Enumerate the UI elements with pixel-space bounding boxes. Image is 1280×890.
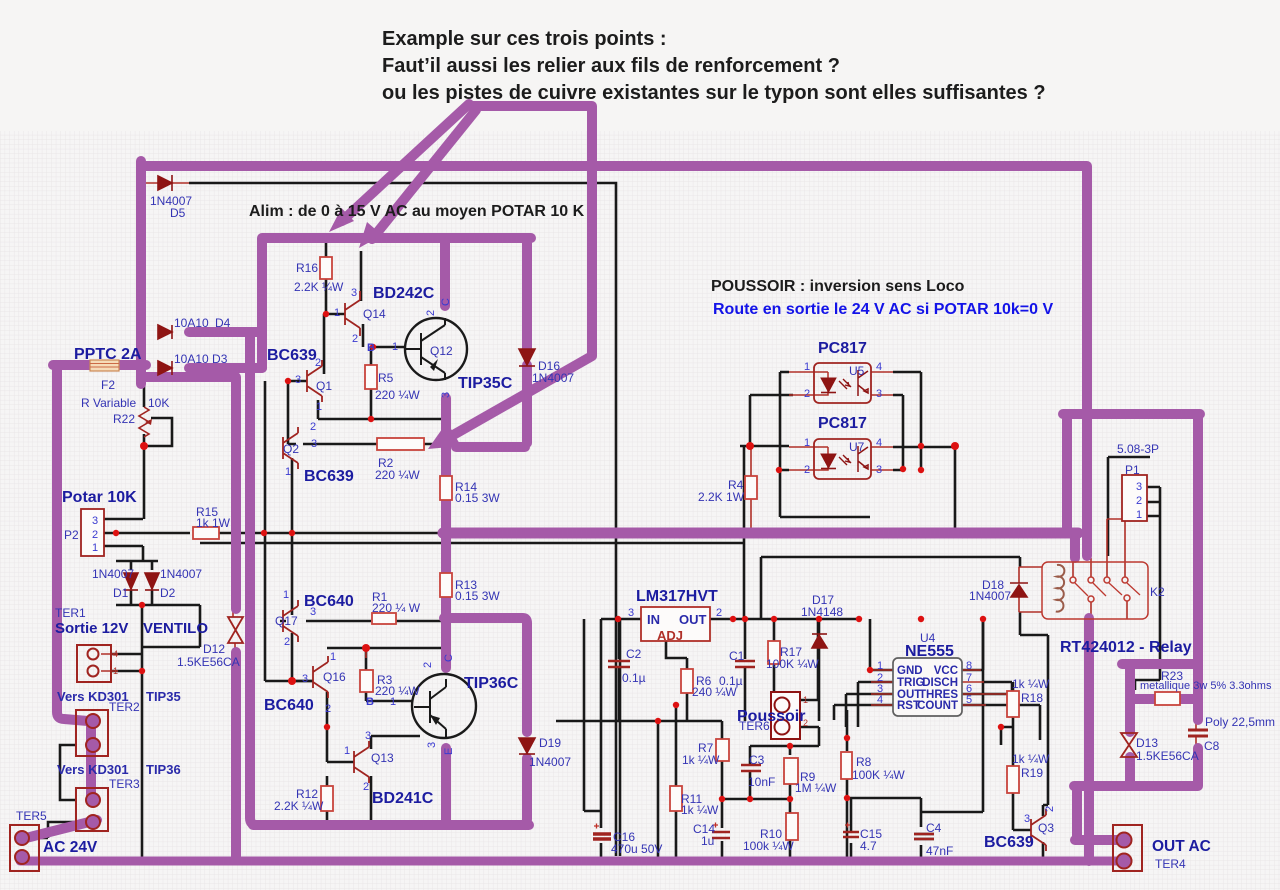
svg-text:Sortie 12V: Sortie 12V <box>55 620 128 637</box>
svg-text:2: 2 <box>716 607 722 619</box>
svg-text:OUT AC: OUT AC <box>1152 838 1211 855</box>
svg-text:2: 2 <box>284 636 290 648</box>
svg-text:1k ¼W: 1k ¼W <box>1012 752 1050 766</box>
svg-text:P2: P2 <box>64 528 79 542</box>
svg-text:8: 8 <box>966 660 972 672</box>
svg-text:1: 1 <box>330 651 336 663</box>
svg-text:0.1µ: 0.1µ <box>622 671 646 685</box>
svg-text:TER6: TER6 <box>739 719 770 733</box>
svg-text:TIP36: TIP36 <box>146 762 181 777</box>
svg-text:4: 4 <box>876 437 882 449</box>
svg-text:Route en sortie le 24 V AC si: Route en sortie le 24 V AC si POTAR 10k=… <box>713 301 1053 318</box>
svg-text:4: 4 <box>876 361 882 373</box>
svg-text:5.08-3P: 5.08-3P <box>1117 442 1159 456</box>
svg-text:TIP35: TIP35 <box>146 689 181 704</box>
svg-text:2: 2 <box>1044 806 1056 812</box>
svg-text:1: 1 <box>285 466 291 478</box>
svg-text:Q17: Q17 <box>275 614 298 628</box>
svg-text:100K ¼W: 100K ¼W <box>766 657 819 671</box>
svg-text:P1: P1 <box>1125 463 1140 477</box>
svg-text:U4: U4 <box>920 631 936 645</box>
svg-text:3: 3 <box>876 464 882 476</box>
svg-text:3: 3 <box>92 515 98 527</box>
svg-text:Potar 10K: Potar 10K <box>62 489 137 506</box>
svg-text:R Variable: R Variable <box>81 396 136 410</box>
svg-text:LM317HVT: LM317HVT <box>636 588 718 605</box>
svg-text:U7: U7 <box>849 440 865 454</box>
svg-text:VCC: VCC <box>934 665 958 677</box>
svg-text:1N4007: 1N4007 <box>529 755 571 769</box>
svg-text:100K ¼W: 100K ¼W <box>852 768 905 782</box>
svg-text:2: 2 <box>315 357 321 369</box>
svg-text:D4: D4 <box>215 316 231 330</box>
svg-text:2: 2 <box>804 388 810 400</box>
svg-text:TRIG: TRIG <box>897 677 925 689</box>
svg-text:E: E <box>443 748 455 755</box>
svg-text:220 ¼ W: 220 ¼ W <box>372 601 421 615</box>
svg-text:B: B <box>366 696 374 708</box>
svg-text:TIP35C: TIP35C <box>458 375 513 392</box>
svg-text:5: 5 <box>966 694 972 706</box>
svg-text:1: 1 <box>804 437 810 449</box>
svg-text:D5: D5 <box>170 206 186 220</box>
svg-text:3: 3 <box>628 607 634 619</box>
svg-text:BC639: BC639 <box>304 468 354 485</box>
svg-text:1: 1 <box>392 341 398 353</box>
svg-text:D1: D1 <box>113 586 129 600</box>
svg-text:Q14: Q14 <box>363 307 386 321</box>
svg-text:3: 3 <box>1136 481 1142 493</box>
svg-text:Poly 22,5mm: Poly 22,5mm <box>1205 715 1275 729</box>
svg-text:4.7: 4.7 <box>860 839 877 853</box>
svg-text:DISCH: DISCH <box>922 677 958 689</box>
svg-text:1N4007: 1N4007 <box>532 371 574 385</box>
svg-text:R18: R18 <box>1021 691 1043 705</box>
svg-text:F2: F2 <box>101 378 115 392</box>
svg-text:R16: R16 <box>296 261 318 275</box>
svg-text:1.5KE56CA: 1.5KE56CA <box>1136 749 1199 763</box>
svg-text:PC817: PC817 <box>818 415 867 432</box>
svg-text:C: C <box>440 298 452 306</box>
svg-text:C4: C4 <box>926 821 942 835</box>
svg-text:2: 2 <box>803 718 808 728</box>
svg-text:3: 3 <box>351 287 357 299</box>
svg-text:BC639: BC639 <box>267 347 317 364</box>
svg-text:PC817: PC817 <box>818 340 867 357</box>
svg-text:1: 1 <box>283 589 289 601</box>
svg-text:2: 2 <box>92 529 98 541</box>
svg-text:Q1: Q1 <box>316 379 332 393</box>
svg-text:PPTC 2A: PPTC 2A <box>74 346 142 363</box>
svg-text:3: 3 <box>876 388 882 400</box>
svg-text:2.2K ¼W: 2.2K ¼W <box>294 280 344 294</box>
svg-text:TER3: TER3 <box>109 777 140 791</box>
svg-text:1N4007: 1N4007 <box>160 567 202 581</box>
svg-text:Example sur ces trois points :: Example sur ces trois points : <box>382 28 667 50</box>
svg-text:Q3: Q3 <box>1038 821 1054 835</box>
svg-text:1: 1 <box>92 542 98 554</box>
svg-text:47nF: 47nF <box>926 844 953 858</box>
svg-text:1: 1 <box>803 695 808 705</box>
svg-text:1: 1 <box>113 666 118 676</box>
svg-text:3: 3 <box>295 374 301 386</box>
svg-text:10K: 10K <box>148 396 169 410</box>
svg-text:TER2: TER2 <box>109 700 140 714</box>
svg-text:OUT: OUT <box>679 612 707 627</box>
svg-text:2: 2 <box>363 781 369 793</box>
svg-text:1: 1 <box>1136 509 1142 521</box>
svg-text:10nF: 10nF <box>748 775 775 789</box>
svg-text:U5: U5 <box>849 364 865 378</box>
svg-text:D12: D12 <box>203 642 225 656</box>
svg-text:C2: C2 <box>626 647 642 661</box>
svg-text:BD242C: BD242C <box>373 285 435 302</box>
svg-text:B: B <box>367 342 375 354</box>
svg-text:D19: D19 <box>539 736 561 750</box>
svg-text:220 ¼W: 220 ¼W <box>375 468 420 482</box>
svg-text:1: 1 <box>390 696 396 708</box>
svg-text:4: 4 <box>113 649 118 659</box>
svg-text:2.2K ¼W: 2.2K ¼W <box>274 799 324 813</box>
svg-text:1: 1 <box>334 307 340 319</box>
svg-text:3: 3 <box>1024 813 1030 825</box>
svg-text:POUSSOIR : inversion sens Loco: POUSSOIR : inversion sens Loco <box>711 278 965 295</box>
svg-text:D2: D2 <box>160 586 176 600</box>
svg-text:2: 2 <box>352 333 358 345</box>
svg-text:R19: R19 <box>1021 766 1043 780</box>
svg-text:1k ¼W: 1k ¼W <box>682 753 720 767</box>
svg-text:BC639: BC639 <box>984 834 1034 851</box>
svg-text:C1: C1 <box>729 649 745 663</box>
svg-text:RT424012 - Relay: RT424012 - Relay <box>1060 639 1192 656</box>
svg-text:VENTILO: VENTILO <box>143 620 208 637</box>
svg-text:TIP36C: TIP36C <box>464 675 519 692</box>
svg-text:1: 1 <box>344 745 350 757</box>
svg-text:AC 24V: AC 24V <box>43 839 98 856</box>
svg-text:3: 3 <box>426 742 438 748</box>
svg-text:3: 3 <box>310 606 316 618</box>
svg-text:2: 2 <box>422 662 434 668</box>
svg-text:2: 2 <box>804 464 810 476</box>
svg-text:100k ¼W: 100k ¼W <box>743 839 794 853</box>
svg-text:Alim : de 0 à 15 V AC au moyen: Alim : de 0 à 15 V AC au moyen POTAR 10 … <box>249 203 585 220</box>
svg-text:1N4007: 1N4007 <box>92 567 134 581</box>
svg-text:NE555: NE555 <box>905 643 954 660</box>
svg-text:R5: R5 <box>378 371 394 385</box>
svg-text:GND: GND <box>897 665 923 677</box>
svg-text:C3: C3 <box>749 753 765 767</box>
svg-text:3: 3 <box>311 438 317 450</box>
svg-text:10A10: 10A10 <box>174 316 209 330</box>
svg-text:metallique 3w 5% 3.3ohms: metallique 3w 5% 3.3ohms <box>1140 680 1272 692</box>
svg-text:1: 1 <box>316 401 322 413</box>
svg-text:Q13: Q13 <box>371 751 394 765</box>
svg-text:BD241C: BD241C <box>372 790 434 807</box>
svg-text:1u: 1u <box>701 834 714 848</box>
svg-text:1M ¼W: 1M ¼W <box>795 781 837 795</box>
svg-text:1N4007: 1N4007 <box>969 589 1011 603</box>
svg-text:3: 3 <box>365 730 371 742</box>
svg-text:470u 50V: 470u 50V <box>611 842 662 856</box>
svg-text:TER5: TER5 <box>16 809 47 823</box>
svg-text:Q12: Q12 <box>430 344 453 358</box>
svg-text:1k ¼W: 1k ¼W <box>681 803 719 817</box>
svg-text:240 ¼W: 240 ¼W <box>692 685 737 699</box>
svg-text:1k ¼W: 1k ¼W <box>1012 677 1050 691</box>
svg-text:1: 1 <box>877 660 883 672</box>
svg-text:0.15 3W: 0.15 3W <box>455 589 500 603</box>
svg-text:ADJ: ADJ <box>657 628 683 643</box>
svg-text:1k 1W: 1k 1W <box>196 516 231 530</box>
svg-text:Faut’il aussi les relier aux f: Faut’il aussi les relier aux fils de ren… <box>382 55 840 77</box>
svg-text:C8: C8 <box>1204 739 1220 753</box>
svg-text:1.5KE56CA: 1.5KE56CA <box>177 655 240 669</box>
svg-text:IN: IN <box>647 612 660 627</box>
svg-text:TER1: TER1 <box>55 606 86 620</box>
svg-text:2: 2 <box>1136 495 1142 507</box>
svg-text:COUNT: COUNT <box>917 700 958 712</box>
svg-text:3: 3 <box>302 673 308 685</box>
svg-text:Q16: Q16 <box>323 670 346 684</box>
svg-text:R22: R22 <box>113 412 135 426</box>
svg-text:Vers KD301: Vers KD301 <box>57 762 129 777</box>
svg-text:220 ¼W: 220 ¼W <box>375 388 420 402</box>
svg-text:ou les pistes de cuivre exista: ou les pistes de cuivre existantes sur l… <box>382 82 1046 104</box>
svg-text:10A10 D3: 10A10 D3 <box>174 352 228 366</box>
svg-text:TER4: TER4 <box>1155 857 1186 871</box>
svg-text:D13: D13 <box>1136 736 1158 750</box>
svg-text:K2: K2 <box>1150 585 1165 599</box>
svg-text:BC640: BC640 <box>264 697 314 714</box>
svg-text:220 ¼W: 220 ¼W <box>375 684 420 698</box>
svg-text:3: 3 <box>440 392 452 398</box>
svg-text:2.2K 1W: 2.2K 1W <box>698 490 745 504</box>
svg-text:Q2: Q2 <box>283 442 299 456</box>
svg-text:4: 4 <box>877 694 883 706</box>
svg-text:2: 2 <box>310 421 316 433</box>
svg-text:1: 1 <box>804 361 810 373</box>
svg-text:1N4148: 1N4148 <box>801 605 843 619</box>
svg-text:C: C <box>443 654 455 662</box>
svg-text:2: 2 <box>325 703 331 715</box>
svg-text:R8: R8 <box>856 755 872 769</box>
svg-text:2: 2 <box>425 310 437 316</box>
svg-text:0.15 3W: 0.15 3W <box>455 491 500 505</box>
